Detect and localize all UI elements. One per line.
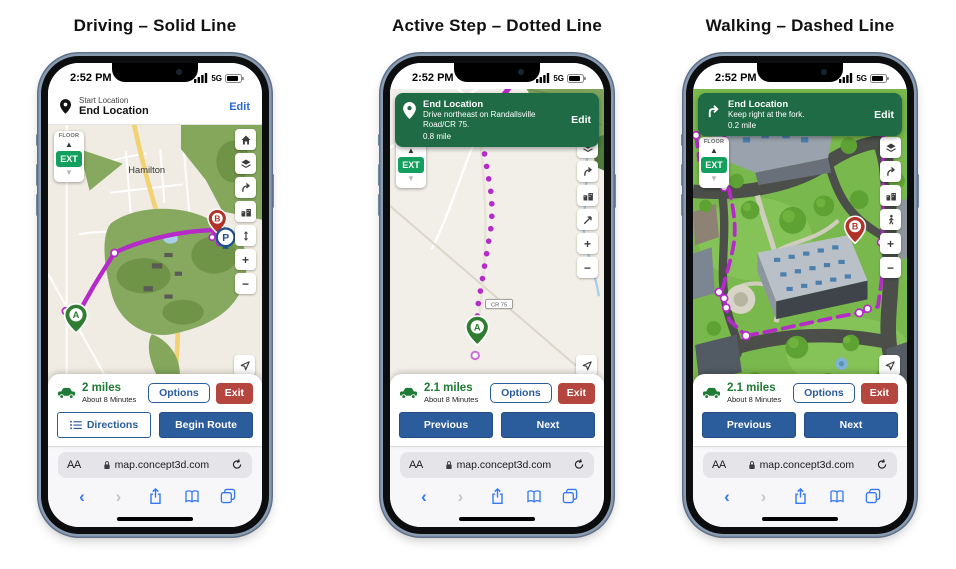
share-button[interactable] (145, 486, 165, 506)
zoom-out-button[interactable]: − (577, 257, 598, 278)
rotate-icon (240, 182, 252, 194)
panel-driving: Driving – Solid Line 2:52 PM 5G (40, 16, 270, 534)
home-view-button[interactable] (235, 129, 256, 150)
map-controls: + − (880, 137, 901, 278)
svg-text:B: B (852, 222, 858, 232)
battery-icon (225, 74, 242, 83)
walking-person-icon (885, 214, 897, 226)
rotate-icon (582, 166, 594, 178)
floor-ext-button[interactable]: EXT (56, 151, 82, 167)
zoom-in-button[interactable]: + (577, 233, 598, 254)
reader-button[interactable]: AA (712, 459, 726, 471)
locate-me-button[interactable] (879, 355, 900, 376)
buildings-icon (582, 190, 594, 202)
banner-instruction: Keep right at the fork. (728, 110, 805, 120)
rotate-button[interactable] (577, 161, 598, 182)
network-label: 5G (553, 74, 564, 83)
panel-walking: Walking – Dashed Line 2:52 PM 5G (685, 16, 915, 534)
lock-icon (445, 460, 453, 470)
route-duration: About 8 Minutes (727, 395, 781, 404)
safari-url-bar: AA map.concept3d.com (390, 446, 604, 482)
previous-step-button[interactable]: Previous (399, 412, 493, 438)
safari-toolbar: ‹ › (390, 482, 604, 527)
locate-icon (581, 360, 593, 372)
book-icon (184, 489, 200, 504)
floor-up-button[interactable]: ▲ (56, 139, 82, 151)
home-icon (240, 134, 252, 146)
floor-selector: FLOOR ▲ EXT ▼ (699, 137, 729, 188)
refresh-icon[interactable] (876, 458, 888, 471)
locate-me-button[interactable] (576, 355, 597, 376)
options-button[interactable]: Options (490, 383, 552, 403)
phone-walking: 2:52 PM 5G (686, 56, 914, 534)
volume-down-button (681, 194, 684, 216)
route-summary-card: 2 miles About 8 Minutes Options Exit Dir… (48, 374, 262, 446)
route-header: Start Location End Location Edit (48, 89, 262, 125)
mute-switch (681, 134, 684, 146)
home-indicator[interactable] (117, 517, 193, 521)
rotate-icon (885, 166, 897, 178)
tabs-button[interactable] (863, 486, 883, 506)
floor-selector: FLOOR ▲ EXT ▼ (54, 131, 84, 182)
battery-icon (567, 74, 584, 83)
back-button[interactable]: ‹ (72, 486, 92, 506)
panel-title-driving: Driving – Solid Line (40, 16, 270, 36)
zoom-in-button[interactable]: + (880, 233, 901, 254)
location-pin-icon (60, 99, 71, 114)
layers-button[interactable] (235, 153, 256, 174)
floor-down-button[interactable]: ▼ (701, 173, 727, 185)
forward-button[interactable]: › (109, 486, 129, 506)
floor-ext-button[interactable]: EXT (701, 157, 727, 173)
panel-active-step: Active Step – Dotted Line 2:52 PM 5G (382, 16, 612, 534)
volume-up-button (36, 164, 39, 186)
reader-button[interactable]: AA (409, 459, 423, 471)
step-banner: End Location Drive northeast on Randalls… (395, 93, 599, 147)
share-icon (148, 488, 163, 505)
floor-up-button[interactable]: ▲ (398, 145, 424, 157)
url-text: map.concept3d.com (115, 459, 210, 471)
map-driving[interactable]: Hamilton (48, 125, 262, 384)
options-button[interactable]: Options (793, 383, 855, 403)
bookmarks-button[interactable] (827, 486, 847, 506)
panel-title-active-step: Active Step – Dotted Line (382, 16, 612, 36)
comparison-figure: Driving – Solid Line 2:52 PM 5G (0, 0, 956, 569)
volume-up-button (378, 164, 381, 186)
start-location-label: Start Location (79, 96, 149, 105)
refresh-icon[interactable] (573, 458, 585, 471)
locate-icon (239, 360, 251, 372)
mute-switch (378, 134, 381, 146)
zoom-out-button[interactable]: − (880, 257, 901, 278)
route-distance: 2.1 miles (424, 382, 478, 394)
power-button (613, 174, 616, 208)
share-icon (793, 488, 808, 505)
edit-route-link[interactable]: Edit (874, 109, 894, 121)
walking-mode-button[interactable] (880, 209, 901, 230)
tabs-icon (220, 488, 236, 504)
floor-ext-button[interactable]: EXT (398, 157, 424, 173)
safari-url-bar: AA map.concept3d.com (48, 446, 262, 482)
url-text: map.concept3d.com (760, 459, 855, 471)
url-field[interactable]: AA map.concept3d.com (58, 452, 252, 478)
layers-icon (240, 158, 252, 170)
route-summary-card: 2.1 miles About 8 Minutes Options Exit P… (693, 374, 907, 446)
bookmarks-button[interactable] (182, 486, 202, 506)
safari-toolbar: ‹ › (48, 482, 262, 527)
url-text: map.concept3d.com (457, 459, 552, 471)
locate-me-button[interactable] (234, 355, 255, 376)
banner-title: End Location (728, 99, 805, 110)
buildings-icon (885, 190, 897, 202)
refresh-icon[interactable] (231, 458, 243, 471)
directions-button[interactable]: Directions (57, 412, 151, 438)
elevation-icon (240, 230, 252, 242)
previous-step-button[interactable]: Previous (702, 412, 796, 438)
share-button[interactable] (487, 486, 507, 506)
network-label: 5G (856, 74, 867, 83)
exit-button[interactable]: Exit (216, 383, 253, 404)
power-button (271, 174, 274, 208)
lock-icon (103, 460, 111, 470)
tabs-button[interactable] (218, 486, 238, 506)
zoom-out-button[interactable]: − (235, 273, 256, 294)
locate-icon (884, 360, 896, 372)
svg-text:B: B (214, 213, 220, 223)
edit-route-link[interactable]: Edit (571, 114, 591, 126)
clock: 2:52 PM (412, 72, 454, 84)
buildings-button[interactable] (577, 185, 598, 206)
svg-text:A: A (73, 310, 80, 320)
floor-down-button[interactable]: ▼ (56, 167, 82, 179)
volume-down-button (36, 194, 39, 216)
car-icon (399, 386, 418, 400)
tabs-icon (865, 488, 881, 504)
rotate-button[interactable] (235, 177, 256, 198)
reader-button[interactable]: AA (67, 459, 81, 471)
end-location-label: End Location (79, 105, 149, 117)
pointer-button[interactable] (577, 209, 598, 230)
network-label: 5G (211, 74, 222, 83)
phone-active-step: 2:52 PM 5G (383, 56, 611, 534)
town-label: Hamilton (128, 165, 165, 175)
car-icon (702, 386, 721, 400)
map-walking[interactable]: B End Location Keep right at the fork. 0… (693, 89, 907, 384)
floor-label: FLOOR (701, 139, 727, 145)
share-icon (490, 488, 505, 505)
tabs-icon (562, 488, 578, 504)
floor-up-button[interactable]: ▲ (701, 145, 727, 157)
banner-title: End Location (423, 99, 551, 110)
safari-toolbar: ‹ › (693, 482, 907, 527)
route-duration: About 8 Minutes (82, 395, 136, 404)
zoom-in-button[interactable]: + (235, 249, 256, 270)
layers-icon (885, 142, 897, 154)
notch (112, 63, 198, 82)
home-indicator[interactable] (459, 517, 535, 521)
svg-text:A: A (474, 322, 481, 332)
route-distance: 2.1 miles (727, 382, 781, 394)
book-icon (829, 489, 845, 504)
road-shield: CR 75 (486, 299, 513, 308)
route-duration: About 8 Minutes (424, 395, 478, 404)
cursor-icon (582, 214, 594, 226)
svg-text:P: P (222, 233, 229, 244)
next-step-button[interactable]: Next (501, 412, 595, 438)
phone-driving: 2:52 PM 5G Start Location End Location (41, 56, 269, 534)
notch (454, 63, 540, 82)
map-controls: + − (235, 129, 256, 294)
rotate-button[interactable] (880, 161, 901, 182)
power-button (916, 174, 919, 208)
book-icon (526, 489, 542, 504)
turn-right-icon (706, 103, 721, 118)
map-controls: + − (577, 137, 598, 278)
floor-down-button[interactable]: ▼ (398, 173, 424, 185)
banner-distance: 0.8 mile (423, 132, 551, 141)
begin-route-button[interactable]: Begin Route (159, 412, 253, 438)
step-banner: End Location Keep right at the fork. 0.2… (698, 93, 902, 136)
volume-down-button (378, 194, 381, 216)
clock: 2:52 PM (715, 72, 757, 84)
url-field[interactable]: AA map.concept3d.com (400, 452, 594, 478)
floor-label: FLOOR (56, 133, 82, 139)
safari-url-bar: AA map.concept3d.com (693, 446, 907, 482)
location-pin-icon (403, 102, 416, 119)
banner-distance: 0.2 mile (728, 121, 805, 130)
elevation-button[interactable] (235, 225, 256, 246)
car-icon (57, 386, 76, 400)
route-summary-card: 2.1 miles About 8 Minutes Options Exit P… (390, 374, 604, 446)
tabs-button[interactable] (560, 486, 580, 506)
bookmarks-button[interactable] (524, 486, 544, 506)
home-indicator[interactable] (762, 517, 838, 521)
buildings-button[interactable] (235, 201, 256, 222)
clock: 2:52 PM (70, 72, 112, 84)
notch (757, 63, 843, 82)
options-button[interactable]: Options (148, 383, 210, 403)
exit-button[interactable]: Exit (861, 383, 898, 404)
back-button[interactable]: ‹ (717, 486, 737, 506)
back-button[interactable]: ‹ (414, 486, 434, 506)
battery-icon (870, 74, 887, 83)
volume-up-button (681, 164, 684, 186)
buildings-button[interactable] (880, 185, 901, 206)
share-button[interactable] (790, 486, 810, 506)
url-field[interactable]: AA map.concept3d.com (703, 452, 897, 478)
route-distance: 2 miles (82, 382, 136, 394)
banner-instruction: Drive northeast on Randallsville Road/CR… (423, 110, 551, 131)
forward-button[interactable]: › (451, 486, 471, 506)
layers-button[interactable] (880, 137, 901, 158)
exit-button[interactable]: Exit (558, 383, 595, 404)
mute-switch (36, 134, 39, 146)
svg-text:CR 75: CR 75 (491, 302, 507, 308)
panel-title-walking: Walking – Dashed Line (685, 16, 915, 36)
list-icon (70, 420, 82, 430)
forward-button[interactable]: › (754, 486, 774, 506)
buildings-icon (240, 206, 252, 218)
edit-route-link[interactable]: Edit (229, 101, 250, 113)
lock-icon (748, 460, 756, 470)
map-active-step[interactable]: CR 75 A End Locat (390, 89, 604, 384)
next-step-button[interactable]: Next (804, 412, 898, 438)
